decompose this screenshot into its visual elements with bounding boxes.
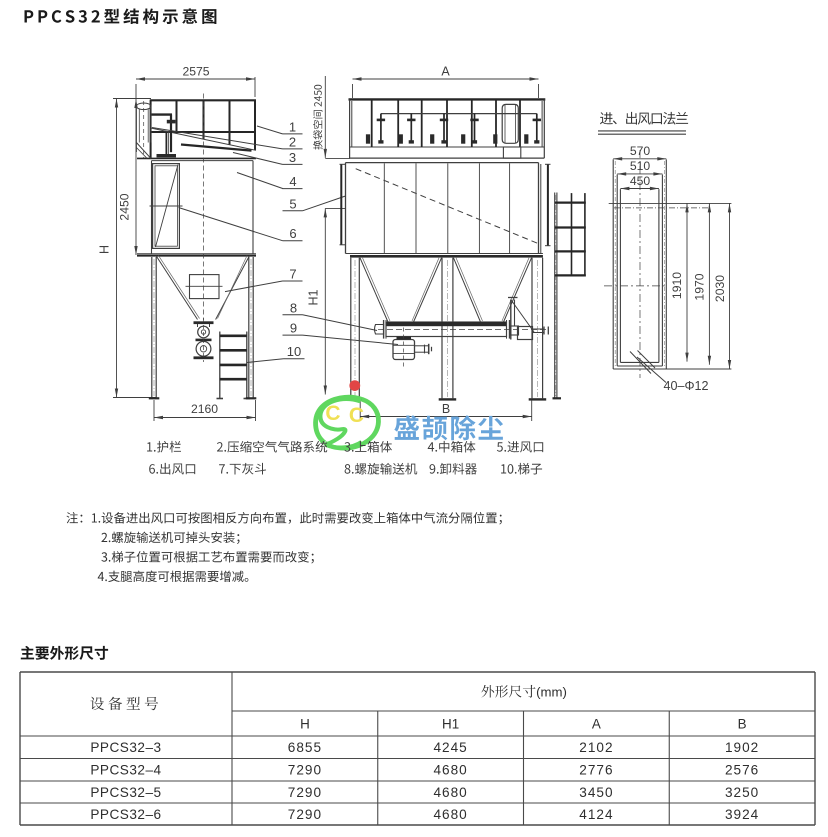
svg-text:A: A (441, 65, 450, 79)
svg-text:PPCS32–3: PPCS32–3 (90, 740, 161, 755)
svg-text:2576: 2576 (725, 763, 759, 778)
svg-text:7290: 7290 (288, 785, 322, 800)
svg-text:H1: H1 (442, 717, 459, 732)
svg-text:1910: 1910 (670, 272, 684, 299)
svg-text:4: 4 (289, 174, 296, 189)
svg-text:4245: 4245 (433, 740, 467, 755)
svg-text:2776: 2776 (579, 763, 613, 778)
svg-text:A: A (592, 717, 601, 732)
svg-text:9: 9 (290, 321, 297, 336)
svg-text:10: 10 (287, 344, 301, 359)
svg-text:2: 2 (289, 135, 296, 150)
svg-text:1: 1 (289, 120, 296, 135)
svg-text:4680: 4680 (433, 763, 467, 778)
svg-text:8: 8 (290, 300, 297, 315)
svg-text:B: B (442, 402, 450, 416)
svg-text:4680: 4680 (433, 785, 467, 800)
svg-text:5: 5 (289, 196, 296, 211)
svg-text:6855: 6855 (288, 740, 322, 755)
svg-text:2030: 2030 (713, 275, 727, 302)
svg-text:4124: 4124 (579, 807, 613, 822)
svg-text:2575: 2575 (182, 65, 209, 79)
svg-text:2450: 2450 (118, 193, 132, 220)
svg-text:7: 7 (289, 267, 296, 282)
svg-text:PPCS32–4: PPCS32–4 (90, 763, 161, 778)
svg-text:3250: 3250 (725, 785, 759, 800)
svg-text:6: 6 (289, 226, 296, 241)
svg-text:H: H (300, 717, 310, 732)
svg-text:B: B (738, 717, 747, 732)
svg-text:(mm): (mm) (536, 685, 567, 700)
svg-text:H1: H1 (307, 289, 321, 305)
svg-text:7290: 7290 (288, 807, 322, 822)
svg-text:40–Φ12: 40–Φ12 (663, 379, 708, 393)
svg-text:3450: 3450 (579, 785, 613, 800)
svg-text:PPCS32–6: PPCS32–6 (90, 807, 161, 822)
svg-text:PPCS32–5: PPCS32–5 (90, 785, 161, 800)
svg-text:3924: 3924 (725, 807, 759, 822)
svg-text:C: C (349, 404, 364, 427)
svg-text:C: C (325, 402, 340, 425)
svg-text:1970: 1970 (693, 273, 707, 300)
svg-text:4680: 4680 (433, 807, 467, 822)
svg-text:1902: 1902 (725, 740, 759, 755)
svg-text:2160: 2160 (191, 402, 218, 416)
svg-text:3: 3 (289, 150, 296, 165)
svg-text:7290: 7290 (288, 763, 322, 778)
svg-text:H: H (98, 245, 112, 254)
svg-text:2102: 2102 (579, 740, 613, 755)
